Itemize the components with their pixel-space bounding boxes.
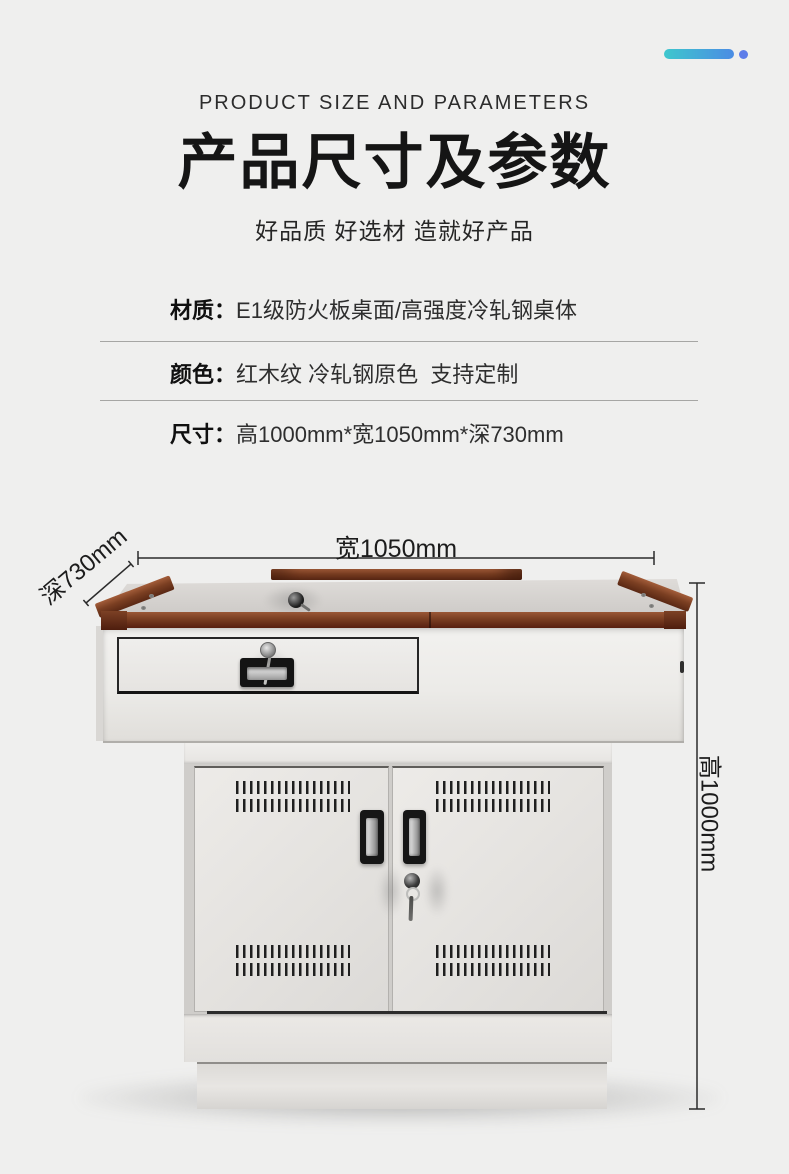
height-dimension-label: 高1000mm bbox=[695, 744, 730, 884]
page-subtitle: 好品质 好选材 造就好产品 bbox=[0, 212, 789, 246]
drawer-handle-slot bbox=[247, 667, 287, 680]
vent-slots bbox=[236, 799, 350, 812]
spec-label-material: 材质： bbox=[170, 293, 236, 325]
vent-slots bbox=[436, 945, 550, 958]
screw-icon bbox=[649, 604, 654, 608]
key-motion-ghost bbox=[378, 865, 404, 917]
spec-label-color: 颜色： bbox=[170, 357, 236, 389]
spec-value-size: 高1000mm*宽1050mm*深730mm bbox=[236, 417, 564, 449]
accent-gradient-bar bbox=[664, 49, 734, 59]
vent-slots bbox=[436, 799, 550, 812]
spec-row-color: 颜色： 红木纹 冷轧钢原色 支持定制 bbox=[100, 358, 698, 388]
wood-front-edge bbox=[101, 612, 686, 628]
vent-slots bbox=[236, 963, 350, 976]
spec-value-color: 红木纹 冷轧钢原色 支持定制 bbox=[236, 357, 518, 389]
vent-slots bbox=[436, 963, 550, 976]
drawer-lock-icon bbox=[260, 642, 276, 658]
door-bottom-shadow bbox=[207, 1011, 607, 1014]
cabinet-top-rail bbox=[184, 741, 612, 764]
side-keyhole-icon bbox=[680, 661, 684, 673]
vent-slots bbox=[236, 945, 350, 958]
spec-row-size: 尺寸： 高1000mm*宽1050mm*深730mm bbox=[100, 418, 698, 448]
key-motion-ghost bbox=[424, 865, 450, 917]
page-title: 产品尺寸及参数 bbox=[0, 114, 789, 201]
cabinet-plinth bbox=[197, 1062, 607, 1109]
wood-corner-cap-left bbox=[101, 611, 127, 630]
eyebrow-title: PRODUCT SIZE AND PARAMETERS bbox=[0, 92, 789, 115]
depth-dimension-tick bbox=[83, 600, 88, 606]
wood-corner-cap-right bbox=[664, 611, 686, 629]
product-detail-page: PRODUCT SIZE AND PARAMETERS 产品尺寸及参数 好品质 … bbox=[0, 0, 789, 1174]
book-ledge-wood-strip bbox=[271, 569, 522, 580]
divider bbox=[100, 341, 698, 342]
depth-dimension-tick bbox=[128, 561, 133, 567]
screw-icon bbox=[141, 606, 146, 610]
wood-front-seam bbox=[429, 612, 431, 628]
door-handle-right-slot bbox=[409, 818, 420, 856]
accent-dot bbox=[739, 50, 748, 59]
screw-icon bbox=[641, 593, 646, 597]
screw-icon bbox=[149, 594, 154, 598]
divider bbox=[100, 400, 698, 401]
vent-slots bbox=[236, 781, 350, 794]
vent-slots bbox=[436, 781, 550, 794]
spec-value-material: E1级防火板桌面/高强度冷轧钢桌体 bbox=[236, 293, 577, 325]
cabinet-bottom-rail bbox=[184, 1014, 612, 1062]
spec-label-size: 尺寸： bbox=[170, 417, 236, 449]
door-handle-left-slot bbox=[366, 818, 378, 856]
spec-row-material: 材质： E1级防火板桌面/高强度冷轧钢桌体 bbox=[100, 294, 698, 324]
width-dimension-label: 宽1050mm bbox=[296, 529, 496, 565]
